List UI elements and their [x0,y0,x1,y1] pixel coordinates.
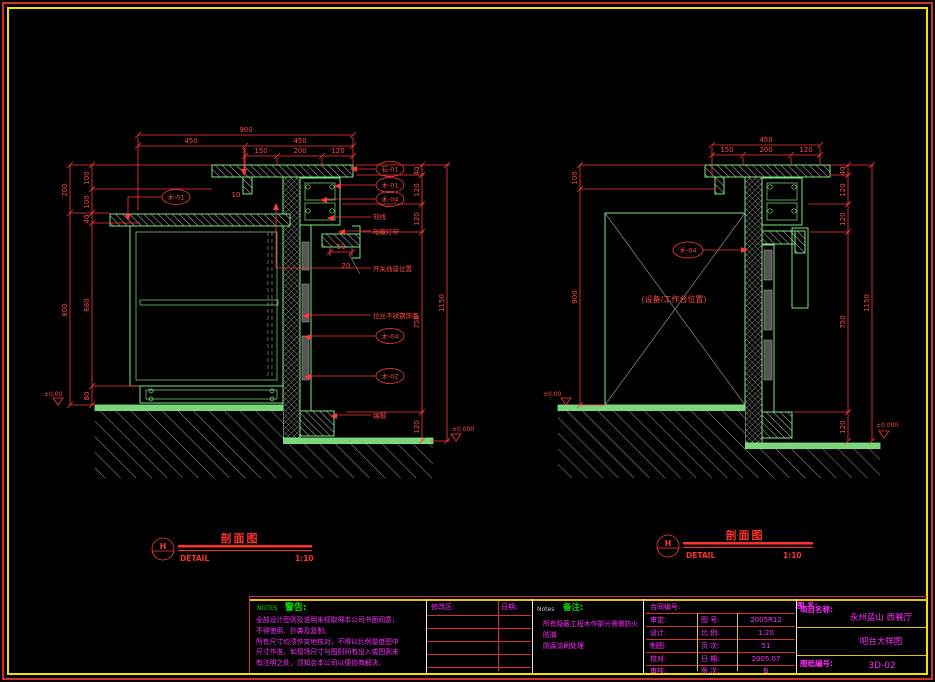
revision-row-line [427,641,531,642]
warning-line: 全部设计图则及说明未经取得本公司书面同意， [256,615,424,626]
tblock-leftline [249,596,250,673]
info-key: 图 号: [701,616,720,625]
drawing-number-label: 图纸编号: [800,659,833,668]
revision-cell: 修改区: 日期: [427,601,531,671]
info-key: 日 期: [701,655,720,664]
cad-sheet: 900 450 450 150 200 120 10 200 100 100 4… [0,0,935,682]
info-role: 制图: [650,642,666,651]
info-value: 2005.07 [738,655,794,664]
title-block: NOTES 警告: 全部设计图则及说明未经取得本公司书面同意， 不得使用、抄袭及… [249,596,927,673]
info-value: 1:20 [738,629,794,638]
revision-row-line [427,628,531,629]
sheet-border-inner [7,7,928,675]
revision-row-line [427,667,531,668]
info-row-line [646,613,795,614]
warning-cell: NOTES 警告: 全部设计图则及说明未经取得本公司书面同意， 不得使用、抄袭及… [253,601,425,671]
drawing-number: 3D-02 [842,661,922,671]
warning-heading: 警告: [285,603,307,613]
info-key: 版 次: [701,667,720,676]
warning-text: 全部设计图则及说明未经取得本公司书面同意， 不得使用、抄袭及复制。 所有尺寸均须… [256,615,424,669]
info-row-line [646,652,795,653]
warning-line: 不得使用、抄袭及复制。 [256,626,424,637]
info-col-line [697,613,698,671]
contract-label: 合同编号: [650,603,680,612]
revision-header: 修改区: [431,603,454,612]
divider [643,599,644,673]
info-key: 比 例: [701,629,720,638]
revision-row-line [427,615,531,616]
info-row-line [646,639,795,640]
info-row-line [646,626,795,627]
project-cell: 项目名称: 永州蓝山 西餐厅 图 名: 吧台大样图 图纸编号: 3D-02 [797,601,927,671]
info-role: 审定: [650,616,666,625]
project-row-line [797,627,927,628]
warning-line: 有注明之处，须知会本公司以便协商解决。 [256,658,424,669]
info-role: 校对: [650,655,666,664]
info-key: 页 次: [701,642,720,651]
info-value: 51 [738,642,794,651]
notes-line: 防腐涂刷处理 [543,641,643,652]
info-row-line [646,665,795,666]
notes-text: 所有隐蔽工程木作部分需做防火防潮 防腐涂刷处理 [543,619,643,651]
revision-row-line [427,654,531,655]
info-role: 设计: [650,629,666,638]
warning-line: 所有尺寸均须作实地核对，不得以比例量度图中 [256,637,424,648]
info-value: 2005R12 [738,616,794,625]
info-role: 审核: [650,667,666,676]
project-name: 永州蓝山 西餐厅 [837,613,925,623]
info-value: B [738,667,794,676]
notes-line: 所有隐蔽工程木作部分需做防火防潮 [543,619,643,641]
warning-tag: NOTES [257,605,277,612]
info-table: 合同编号: 审定: 图 号: 2005R12 设计: 比 例: 1:20 制图:… [646,601,795,671]
notes-tag: Notes [537,606,554,613]
drawing-name-label: 图 名: [797,601,818,610]
notes-cell: Notes 备注: 所有隐蔽工程木作部分需做防火防潮 防腐涂刷处理 [533,601,643,671]
tblock-topline-red [249,596,927,597]
revision-date-header: 日期: [501,603,517,612]
notes-heading: 备注: [563,603,583,613]
project-row-line [797,655,927,656]
warning-line: 尺寸作准。如现场尺寸与图则间有出入或图则未 [256,647,424,658]
drawing-name: 吧台大样图 [837,637,925,647]
revision-col-line [498,601,499,671]
